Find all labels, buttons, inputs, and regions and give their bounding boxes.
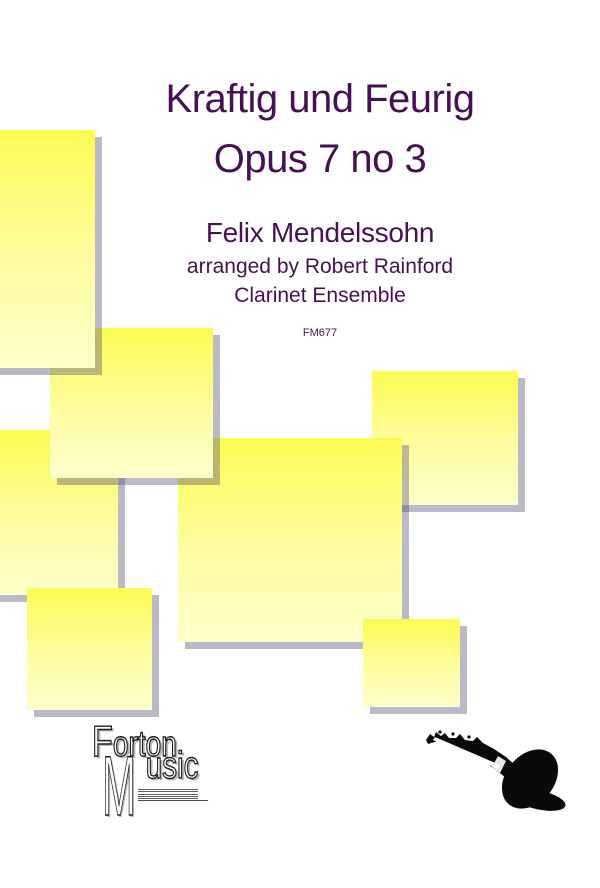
decor-square-bottom-left	[27, 588, 152, 710]
logo-rest-usic: usic	[146, 745, 199, 787]
arranger-credit: arranged by Robert Rainford	[40, 256, 600, 277]
decor-square-bottom-right	[363, 619, 460, 707]
catalog-number: FM677	[40, 328, 600, 339]
ensemble-label: Clarinet Ensemble	[40, 285, 600, 306]
cover-text-block: Kraftig und Feurig Opus 7 no 3 Felix Men…	[40, 0, 600, 360]
logo-word-music: Music	[102, 744, 198, 828]
composer-name: Felix Mendelssohn	[40, 219, 600, 247]
score-cover-page: Kraftig und Feurig Opus 7 no 3 Felix Men…	[0, 0, 600, 888]
logo-initial-m: M	[102, 744, 136, 828]
staff-lines-icon	[138, 789, 198, 803]
title-line-1: Kraftig und Feurig	[40, 79, 600, 119]
clarinet-icon	[420, 728, 570, 818]
publisher-logo: Forton Music	[88, 720, 267, 840]
title-line-2: Opus 7 no 3	[40, 139, 600, 179]
